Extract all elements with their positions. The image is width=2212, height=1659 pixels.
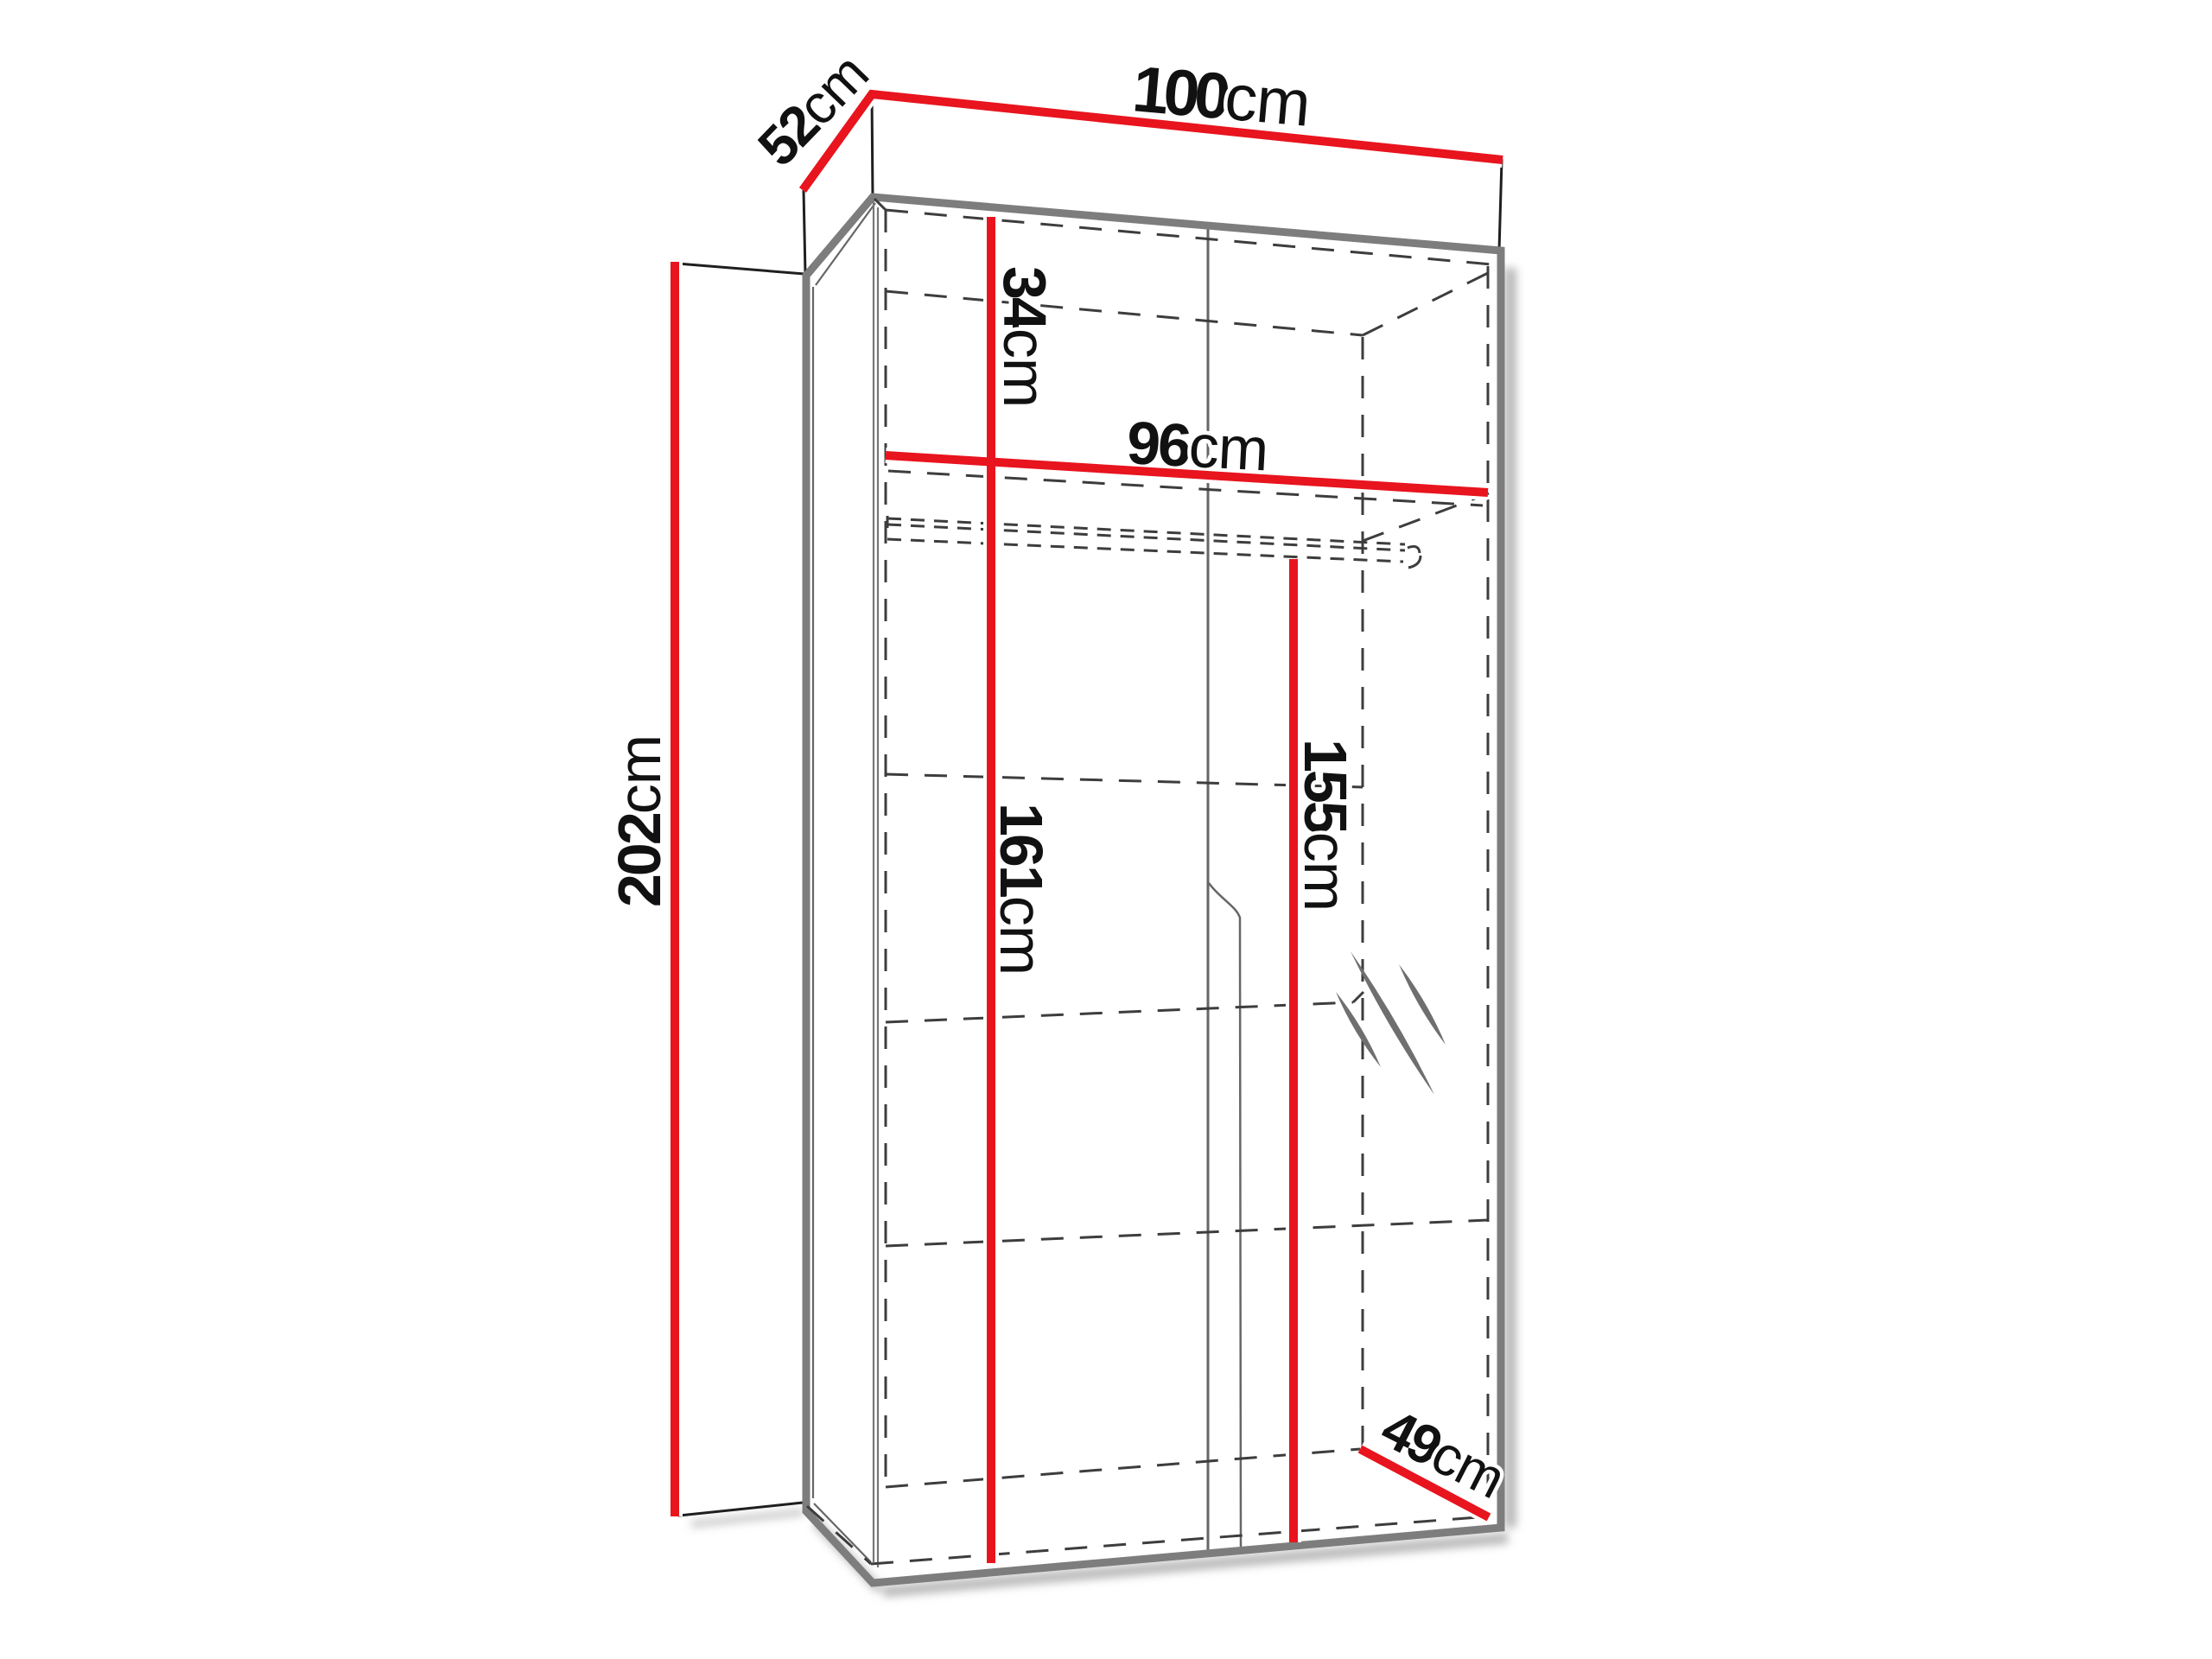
- svg-text:202cm: 202cm: [606, 735, 673, 907]
- svg-text:34cm: 34cm: [991, 266, 1058, 407]
- svg-text:161cm: 161cm: [988, 803, 1055, 975]
- svg-text:155cm: 155cm: [1292, 739, 1359, 911]
